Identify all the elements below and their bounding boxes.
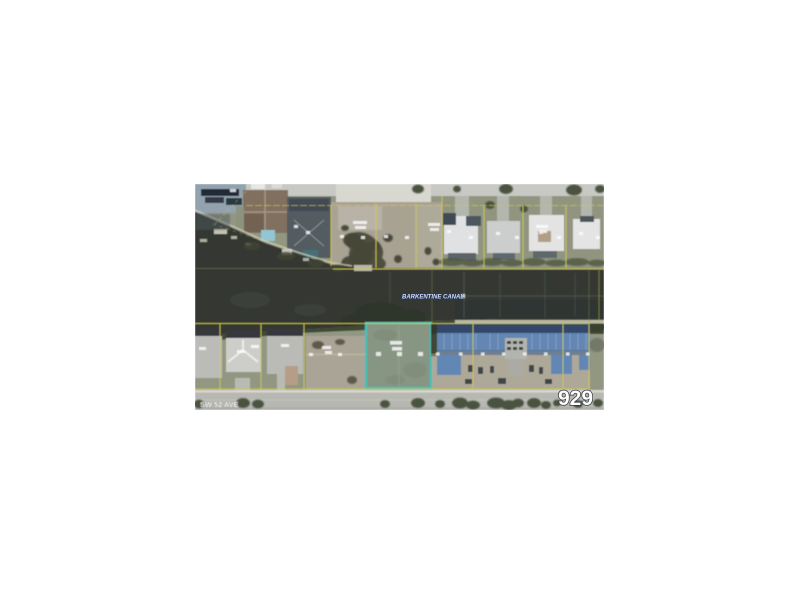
svg-text:929: 929 [558,387,593,410]
svg-text:SW 52 AVE: SW 52 AVE [200,400,239,409]
svg-text:BARKENTINE CANAL: BARKENTINE CANAL [402,295,464,301]
